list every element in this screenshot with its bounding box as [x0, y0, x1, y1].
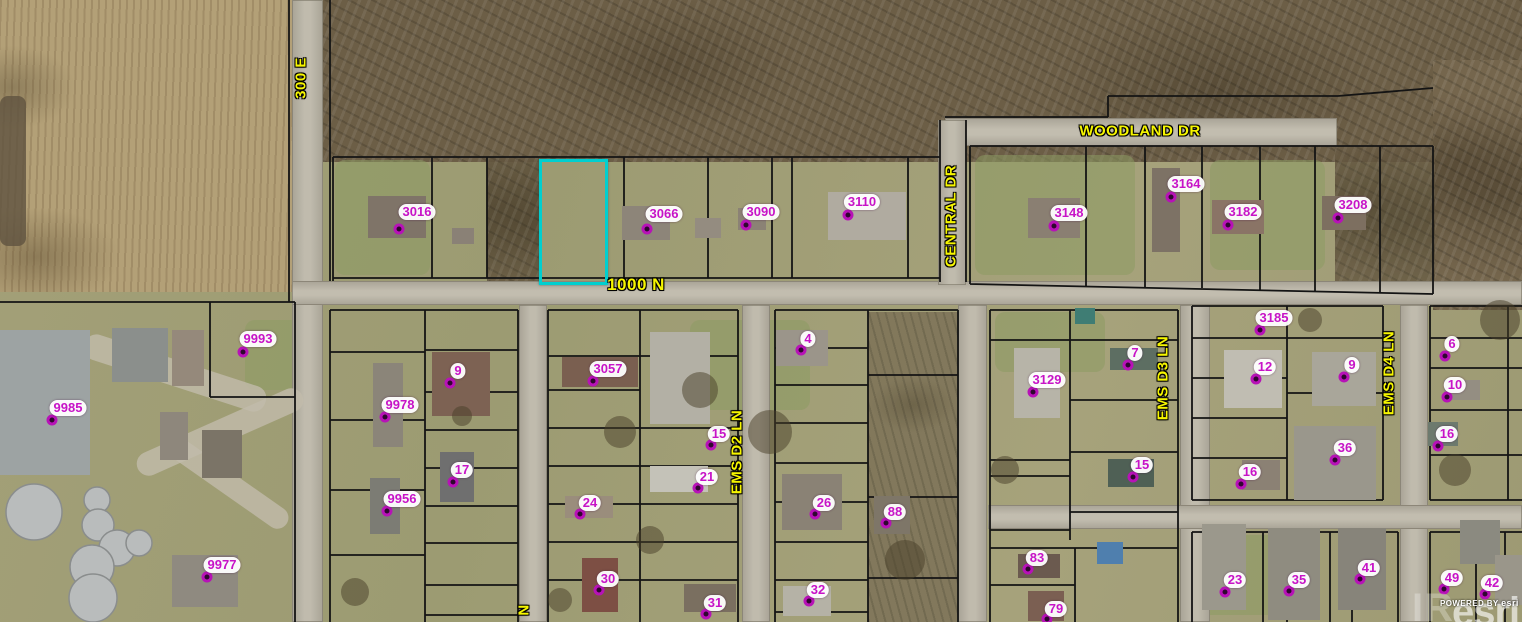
parcel-marker-9977: [202, 572, 213, 583]
road-label-ems-d4-ln: EMS D4 LN: [1381, 331, 1398, 416]
parcel-label-42[interactable]: 42: [1481, 575, 1503, 591]
parcel-label-26[interactable]: 26: [813, 495, 835, 511]
parcel-label-9978[interactable]: 9978: [382, 397, 419, 413]
parcel-marker-12: [1251, 374, 1262, 385]
parcel-marker-3182: [1223, 220, 1234, 231]
parcel-label-32[interactable]: 32: [807, 582, 829, 598]
parcel-label-3110[interactable]: 3110: [844, 194, 880, 210]
parcel-label-16[interactable]: 16: [1239, 464, 1261, 480]
parcel-label-3016[interactable]: 3016: [399, 204, 436, 220]
parcel-label-35[interactable]: 35: [1288, 572, 1310, 588]
parcel-marker-6: [1440, 351, 1451, 362]
parcel-label-88[interactable]: 88: [884, 504, 906, 520]
parcel-label-3057[interactable]: 3057: [590, 361, 627, 377]
parcel-marker-7: [1123, 360, 1134, 371]
parcel-label-21[interactable]: 21: [696, 469, 718, 485]
parcel-marker-17: [448, 477, 459, 488]
parcel-label-6[interactable]: 6: [1444, 336, 1459, 352]
road-label-woodland-dr: WOODLAND DR: [1079, 123, 1200, 140]
powered-by-brand: esri: [1501, 598, 1519, 608]
parcel-marker-10: [1442, 392, 1453, 403]
road-label-300-e: 300 E: [293, 57, 310, 99]
parcel-marker-3110: [843, 210, 854, 221]
parcel-marker-3208: [1333, 213, 1344, 224]
parcel-label-23[interactable]: 23: [1224, 572, 1246, 588]
parcel-marker-3185: [1255, 325, 1266, 336]
parcel-label-4[interactable]: 4: [800, 331, 815, 347]
parcel-label-10[interactable]: 10: [1444, 377, 1466, 393]
parcel-label-3208[interactable]: 3208: [1335, 197, 1372, 213]
parcel-marker-3148: [1049, 221, 1060, 232]
buildings: [0, 168, 1522, 621]
parcel-marker-9978: [380, 412, 391, 423]
parcel-label-41[interactable]: 41: [1358, 560, 1380, 576]
parcel-label-83[interactable]: 83: [1026, 550, 1048, 566]
parcel-marker-3057: [588, 376, 599, 387]
parcel-label-7[interactable]: 7: [1127, 345, 1142, 361]
parcel-marker-9956: [382, 506, 393, 517]
parcel-marker-3164: [1166, 192, 1177, 203]
parcel-marker-23: [1220, 587, 1231, 598]
selected-parcel-highlight[interactable]: [539, 159, 608, 285]
parcel-label-3148[interactable]: 3148: [1051, 205, 1088, 221]
road-label-ems-d3-ln: EMS D3 LN: [1155, 336, 1172, 421]
parcel-marker-3090: [741, 220, 752, 231]
road-label-1000-n: 1000 N: [607, 275, 665, 295]
parcel-label-9985[interactable]: 9985: [50, 400, 87, 416]
parcel-marker-36: [1330, 455, 1341, 466]
road-label-ems-d2-ln: EMS D2 LN: [729, 410, 746, 495]
parcel-label-9[interactable]: 9: [450, 363, 465, 379]
parcel-marker-9993: [238, 347, 249, 358]
parcel-label-17[interactable]: 17: [451, 462, 473, 478]
parcel-label-49[interactable]: 49: [1441, 570, 1463, 586]
parcel-label-31[interactable]: 31: [704, 595, 726, 611]
parcel-label-15-2[interactable]: 15: [1131, 457, 1153, 473]
parcel-label-9993[interactable]: 9993: [240, 331, 277, 347]
road-label-n-partial: N: [516, 604, 533, 615]
parcel-label-9977[interactable]: 9977: [204, 557, 241, 573]
parcel-marker-15-2: [1128, 472, 1139, 483]
parcel-label-3185[interactable]: 3185: [1256, 310, 1293, 326]
parcel-lines-layer: [0, 0, 1522, 622]
powered-by-esri-attribution[interactable]: POWERED BY esri: [1440, 598, 1519, 608]
grain-silos: [6, 484, 152, 622]
parcel-marker-9985: [47, 415, 58, 426]
parcel-marker-16: [1236, 479, 1247, 490]
parcel-label-12[interactable]: 12: [1254, 359, 1276, 375]
parcel-label-16-2[interactable]: 16: [1436, 426, 1458, 442]
parcel-marker-3129: [1028, 387, 1039, 398]
parcel-label-3129[interactable]: 3129: [1029, 372, 1066, 388]
parcel-marker-9-2: [1339, 372, 1350, 383]
parcel-label-15[interactable]: 15: [708, 426, 730, 442]
parcel-label-24[interactable]: 24: [579, 495, 601, 511]
parcel-marker-9: [445, 378, 456, 389]
parcel-label-30[interactable]: 30: [597, 571, 619, 587]
parcel-label-3090[interactable]: 3090: [743, 204, 780, 220]
parcel-label-79[interactable]: 79: [1045, 601, 1067, 617]
road-label-central-dr: CENTRAL DR: [943, 165, 960, 267]
parcel-marker-3066: [642, 224, 653, 235]
parcel-label-9-2[interactable]: 9: [1344, 357, 1359, 373]
parcel-label-36[interactable]: 36: [1334, 440, 1356, 456]
parcel-marker-3016: [394, 224, 405, 235]
powered-by-text: POWERED BY: [1440, 599, 1499, 608]
parcel-label-3066[interactable]: 3066: [646, 206, 683, 222]
map-canvas[interactable]: 300 EWOODLAND DRCENTRAL DR1000 NEMS D2 L…: [0, 0, 1522, 622]
parcel-label-3182[interactable]: 3182: [1225, 204, 1262, 220]
parcel-label-9956[interactable]: 9956: [384, 491, 421, 507]
parcel-marker-16-2: [1433, 441, 1444, 452]
parcel-label-3164[interactable]: 3164: [1168, 176, 1205, 192]
